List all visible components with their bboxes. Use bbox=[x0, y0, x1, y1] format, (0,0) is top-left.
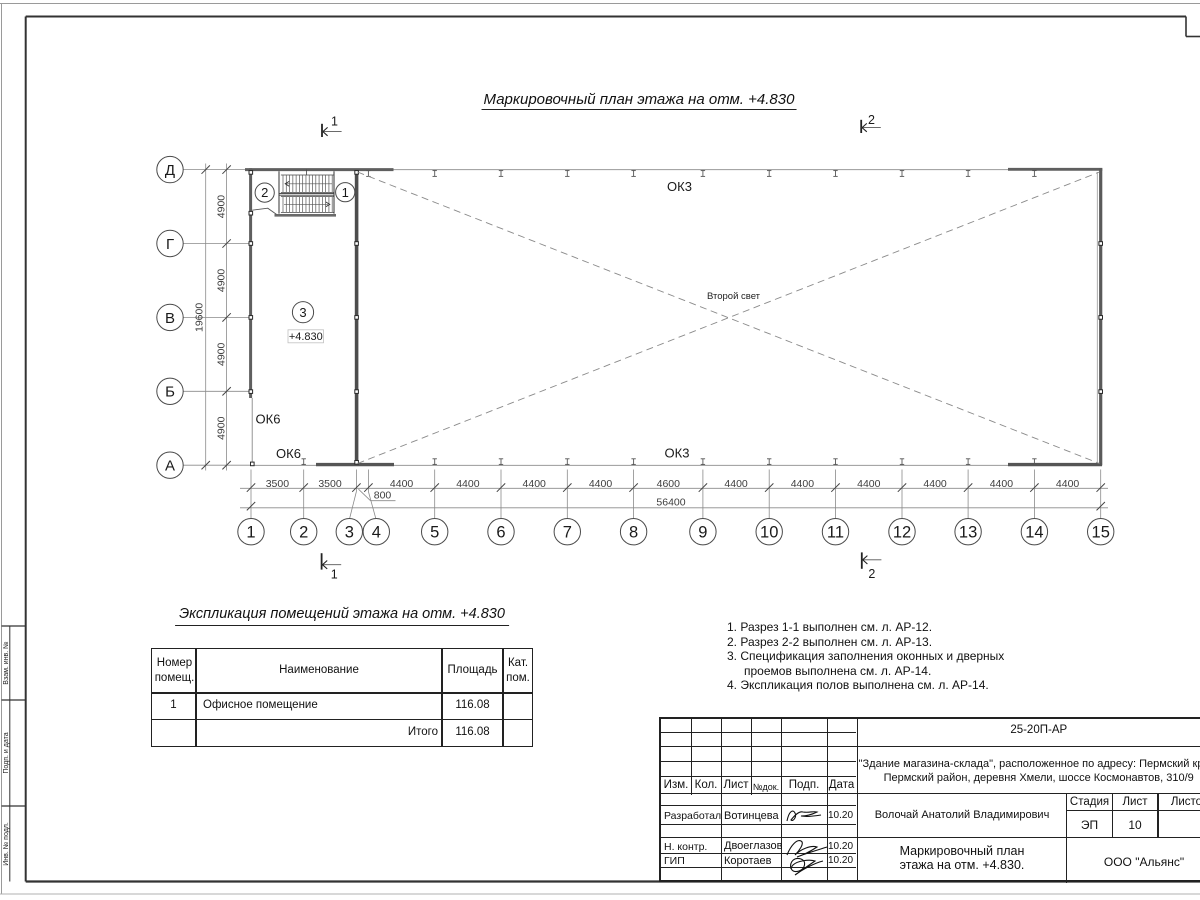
svg-text:Г: Г bbox=[166, 236, 174, 253]
svg-text:2: 2 bbox=[868, 113, 875, 127]
svg-text:7: 7 bbox=[563, 524, 572, 542]
svg-text:4900: 4900 bbox=[216, 416, 228, 440]
svg-text:12: 12 bbox=[893, 524, 911, 542]
svg-text:Взам. инв. №: Взам. инв. № bbox=[3, 641, 10, 684]
svg-text:4: 4 bbox=[372, 524, 381, 542]
svg-text:ОК6: ОК6 bbox=[256, 412, 281, 427]
svg-text:15: 15 bbox=[1092, 524, 1110, 542]
svg-text:56400: 56400 bbox=[656, 497, 685, 509]
svg-text:10: 10 bbox=[760, 524, 778, 542]
svg-text:4400: 4400 bbox=[390, 478, 414, 490]
svg-text:4600: 4600 bbox=[657, 478, 681, 490]
svg-text:3500: 3500 bbox=[318, 478, 342, 490]
svg-text:4400: 4400 bbox=[724, 478, 748, 490]
svg-text:14: 14 bbox=[1025, 524, 1043, 542]
svg-text:В: В bbox=[165, 310, 175, 327]
svg-text:4900: 4900 bbox=[216, 269, 228, 293]
svg-text:А: А bbox=[165, 458, 175, 475]
svg-text:1: 1 bbox=[246, 524, 255, 542]
svg-text:1: 1 bbox=[331, 568, 338, 582]
svg-text:4400: 4400 bbox=[456, 478, 480, 490]
svg-text:3500: 3500 bbox=[266, 478, 290, 490]
svg-text:Инв. № подл.: Инв. № подл. bbox=[3, 822, 10, 866]
svg-text:4900: 4900 bbox=[216, 343, 228, 367]
svg-text:Подп. и дата: Подп. и дата bbox=[3, 732, 10, 773]
svg-text:4400: 4400 bbox=[589, 478, 613, 490]
svg-text:1: 1 bbox=[331, 114, 338, 128]
svg-text:+4.830: +4.830 bbox=[289, 331, 323, 343]
svg-text:5: 5 bbox=[430, 524, 439, 542]
svg-text:4400: 4400 bbox=[990, 478, 1014, 490]
svg-text:4400: 4400 bbox=[523, 478, 547, 490]
svg-text:8: 8 bbox=[629, 524, 638, 542]
svg-text:Б: Б bbox=[165, 384, 175, 401]
svg-text:3: 3 bbox=[345, 524, 354, 542]
svg-text:6: 6 bbox=[496, 524, 505, 542]
svg-text:4400: 4400 bbox=[1056, 478, 1080, 490]
svg-text:19600: 19600 bbox=[193, 303, 205, 332]
svg-text:3: 3 bbox=[299, 305, 306, 320]
svg-text:4900: 4900 bbox=[216, 195, 228, 219]
svg-text:2: 2 bbox=[868, 567, 875, 581]
svg-text:11: 11 bbox=[827, 524, 844, 542]
svg-text:2: 2 bbox=[299, 524, 308, 542]
svg-text:800: 800 bbox=[374, 489, 392, 501]
svg-text:4400: 4400 bbox=[923, 478, 947, 490]
svg-text:4400: 4400 bbox=[857, 478, 881, 490]
svg-text:ОК6: ОК6 bbox=[276, 446, 301, 461]
svg-text:4400: 4400 bbox=[791, 478, 815, 490]
svg-text:ОК3: ОК3 bbox=[665, 446, 690, 461]
svg-text:9: 9 bbox=[698, 524, 707, 542]
svg-text:Второй свет: Второй свет bbox=[707, 291, 761, 302]
svg-text:13: 13 bbox=[959, 524, 977, 542]
svg-text:1: 1 bbox=[342, 185, 349, 200]
svg-text:ОК3: ОК3 bbox=[667, 179, 692, 194]
svg-text:2: 2 bbox=[261, 185, 268, 200]
svg-text:Д: Д bbox=[165, 162, 175, 179]
